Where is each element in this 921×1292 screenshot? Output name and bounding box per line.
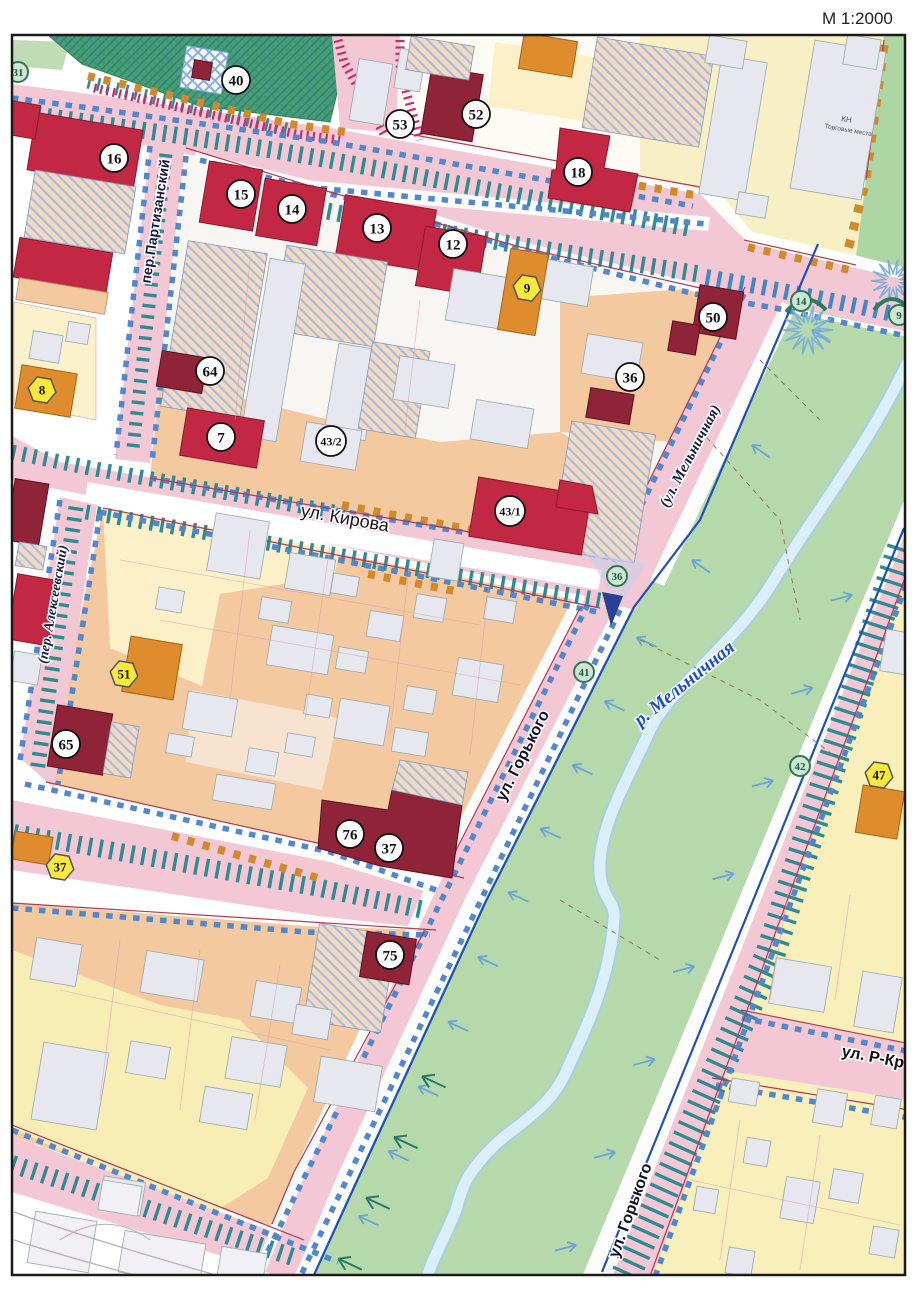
svg-text:7: 7 xyxy=(217,430,225,446)
svg-text:18: 18 xyxy=(571,165,586,181)
svg-text:37: 37 xyxy=(54,860,68,875)
svg-text:37: 37 xyxy=(382,841,398,857)
svg-text:КН: КН xyxy=(841,114,853,125)
svg-text:31: 31 xyxy=(13,67,24,79)
svg-text:8: 8 xyxy=(39,383,46,398)
svg-text:50: 50 xyxy=(706,310,721,326)
svg-text:41: 41 xyxy=(579,667,590,679)
svg-text:16: 16 xyxy=(107,151,123,167)
svg-text:43/2: 43/2 xyxy=(320,434,341,448)
svg-text:75: 75 xyxy=(383,948,398,964)
svg-text:64: 64 xyxy=(203,364,219,380)
svg-text:9: 9 xyxy=(524,281,531,296)
svg-text:14: 14 xyxy=(285,202,301,218)
svg-text:13: 13 xyxy=(370,221,385,237)
svg-text:9: 9 xyxy=(896,310,902,322)
svg-text:42: 42 xyxy=(795,761,807,773)
svg-text:36: 36 xyxy=(612,571,624,583)
svg-text:15: 15 xyxy=(234,187,249,203)
svg-text:65: 65 xyxy=(59,737,74,753)
svg-text:53: 53 xyxy=(393,117,408,133)
svg-text:12: 12 xyxy=(446,237,461,253)
svg-text:М 1:2000: М 1:2000 xyxy=(822,9,893,28)
svg-text:43/1: 43/1 xyxy=(499,504,520,518)
svg-text:52: 52 xyxy=(469,107,484,123)
svg-text:36: 36 xyxy=(623,370,639,386)
svg-text:76: 76 xyxy=(343,827,359,843)
svg-text:47: 47 xyxy=(873,768,887,783)
svg-text:51: 51 xyxy=(118,667,131,682)
svg-text:40: 40 xyxy=(229,73,244,89)
svg-text:14: 14 xyxy=(796,296,808,308)
